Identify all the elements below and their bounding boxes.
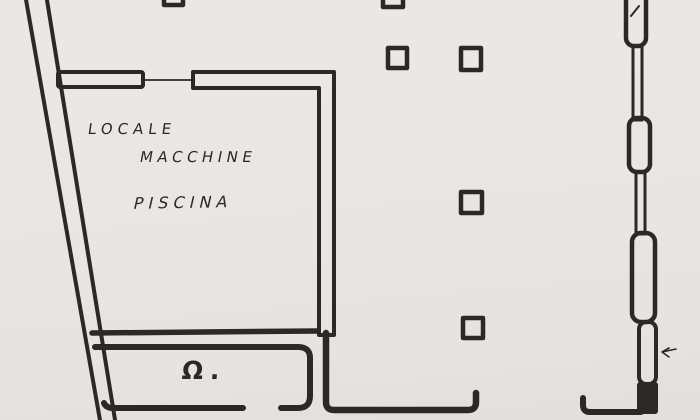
window-symbol-4 xyxy=(639,322,656,384)
wall-right-connector-1 xyxy=(633,46,642,120)
pillar-1 xyxy=(164,0,183,5)
wall-small-room-bottom xyxy=(104,403,243,408)
pillar-4 xyxy=(461,48,481,70)
window-symbol-3 xyxy=(632,233,655,322)
wall-top-left-segment xyxy=(58,72,143,87)
pillar-3 xyxy=(388,48,407,68)
wall-vertical-lower-and-bottom-left xyxy=(326,333,476,410)
window-symbol-1 xyxy=(626,0,646,46)
wall-bottom-right-segment xyxy=(583,398,641,412)
floor-plan-scan: LOCALE MACCHINE PISCINA Ω. xyxy=(0,0,700,420)
pillar-5 xyxy=(461,192,482,213)
pillar-2 xyxy=(383,0,403,7)
wall-right-bottom-block xyxy=(637,382,658,414)
wall-left-slant-outer xyxy=(25,0,101,420)
wall-machine-room-bottom xyxy=(92,331,317,333)
pillar-6 xyxy=(463,318,483,338)
small-room-label: Ω. xyxy=(181,356,228,385)
wall-left-slant-inner xyxy=(46,0,116,420)
machine-room-label-line1: LOCALE xyxy=(87,120,178,138)
machine-room-label-line3: PISCINA xyxy=(132,192,235,213)
machine-room-label-line2: MACCHINE xyxy=(138,148,258,166)
window-symbol-2 xyxy=(629,118,650,172)
door-swing-arrow xyxy=(662,348,676,357)
floor-plan-drawing xyxy=(0,0,700,420)
window-pane-tick xyxy=(631,6,639,16)
wall-right-connector-2 xyxy=(636,172,645,234)
